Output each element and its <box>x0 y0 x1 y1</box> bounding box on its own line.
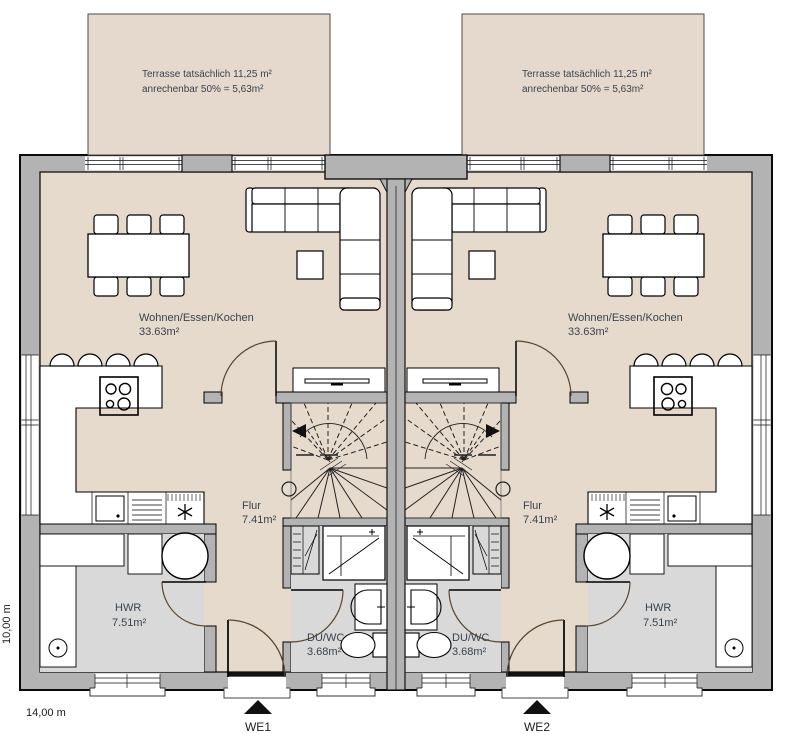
entrance-arrow-we1-icon <box>244 700 272 714</box>
terrace-label-line2: anrechenbar 50% = 5,63m² <box>142 84 264 95</box>
room-area-hall: 7.41m² <box>242 514 277 526</box>
room-label-hall: Flur <box>242 500 261 512</box>
room-label-utility: HWR <box>645 602 671 614</box>
room-area-bath: 3.68m² <box>452 646 487 658</box>
room-label-bath: DU/WC <box>307 632 344 644</box>
room-area-utility: 7.51m² <box>112 617 147 629</box>
dimension-depth: 10,00 m <box>1 604 13 644</box>
floor-plan-page: Terrasse tatsächlich 11,25 m² anrechenba… <box>0 0 792 734</box>
room-label-living: Wohnen/Essen/Kochen <box>568 312 683 324</box>
dimension-width: 14,00 m <box>26 707 66 719</box>
terrace-label-line1: Terrasse tatsächlich 11,25 m² <box>522 69 653 80</box>
room-area-utility: 7.51m² <box>643 617 678 629</box>
room-label-living: Wohnen/Essen/Kochen <box>139 312 254 324</box>
entrance-markers: WE1 WE2 <box>244 700 551 734</box>
room-area-hall: 7.41m² <box>523 514 558 526</box>
terrace-label-line1: Terrasse tatsächlich 11,25 m² <box>142 69 273 80</box>
floor-plan-drawing: Terrasse tatsächlich 11,25 m² anrechenba… <box>0 0 792 734</box>
terrace-label-line2: anrechenbar 50% = 5,63m² <box>522 84 644 95</box>
entrance-arrow-we2-icon <box>523 700 551 714</box>
room-area-living: 33.63m² <box>139 326 180 338</box>
room-label-bath: DU/WC <box>452 632 489 644</box>
unit-label-we2: WE2 <box>524 720 550 734</box>
room-label-hall: Flur <box>523 500 542 512</box>
room-label-utility: HWR <box>115 602 141 614</box>
unit-label-we1: WE1 <box>245 720 271 734</box>
room-area-living: 33.63m² <box>568 326 609 338</box>
room-area-bath: 3.68m² <box>307 646 342 658</box>
